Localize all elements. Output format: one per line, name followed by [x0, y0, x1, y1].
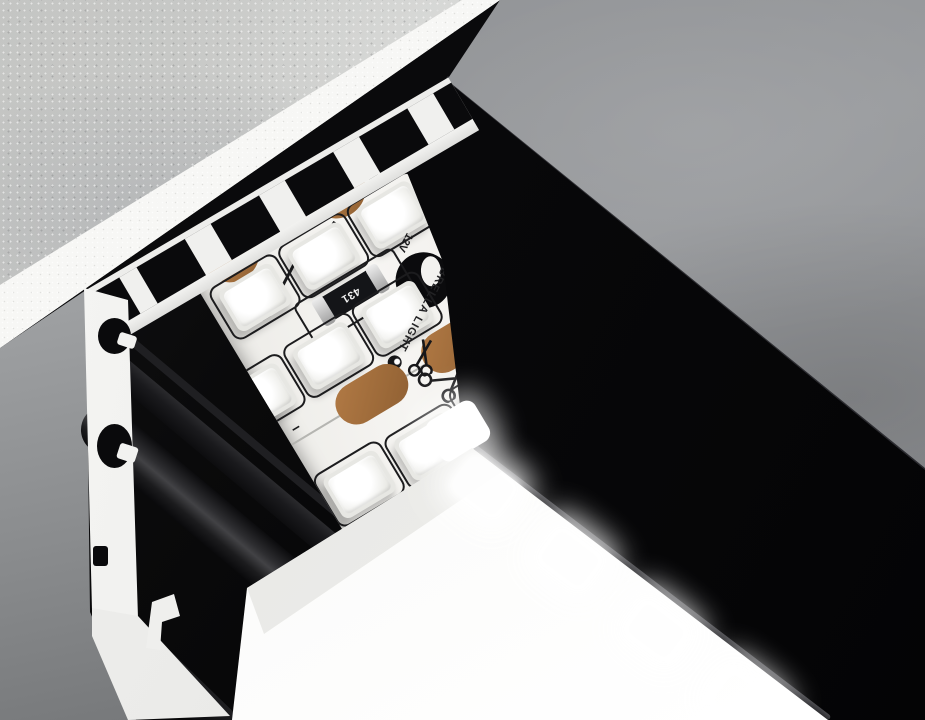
scene: − + 12V 431 AMBRELLA LIGHT − + [0, 0, 925, 720]
profile-cut-notch [93, 546, 108, 566]
screw-channel-cutout [97, 424, 132, 468]
screw-channel-cutout [98, 318, 131, 354]
minus-marking: − [289, 420, 304, 437]
